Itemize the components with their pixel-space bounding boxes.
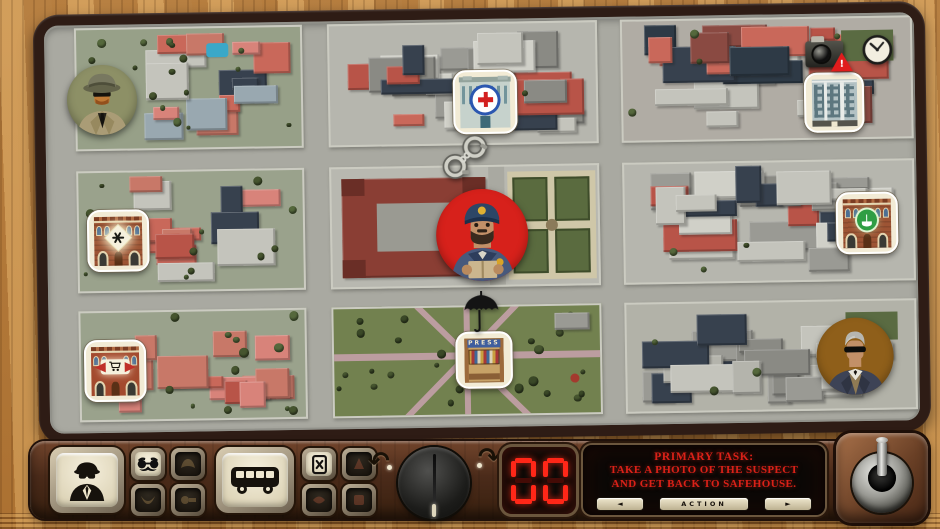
market-building xyxy=(90,345,141,396)
building xyxy=(675,194,717,212)
counter-digit xyxy=(543,458,568,504)
building xyxy=(735,165,762,202)
dial-dot-left xyxy=(387,465,392,470)
tree xyxy=(170,313,179,322)
tree xyxy=(371,384,377,390)
rotate-left-icon[interactable]: ↶ xyxy=(368,449,390,475)
building xyxy=(730,46,790,76)
tree xyxy=(543,390,550,397)
tree xyxy=(578,391,584,397)
tree xyxy=(652,339,658,345)
hospital-tile[interactable] xyxy=(453,69,518,134)
building xyxy=(776,170,831,205)
tree xyxy=(514,383,524,393)
tree xyxy=(434,363,439,368)
tree xyxy=(239,348,249,358)
pass-card-button[interactable] xyxy=(302,448,336,480)
joystick[interactable] xyxy=(836,433,928,523)
tree xyxy=(288,205,296,213)
tree xyxy=(336,387,341,392)
action-option-3-button[interactable] xyxy=(302,484,336,516)
clock-icon[interactable] xyxy=(861,34,894,70)
bar-tile[interactable] xyxy=(87,209,150,272)
action-label: ACTION xyxy=(681,500,727,508)
building xyxy=(240,381,266,408)
tree xyxy=(225,332,231,338)
tree xyxy=(199,230,204,235)
tree xyxy=(395,337,402,344)
building xyxy=(232,41,261,54)
hedge-plot xyxy=(555,229,591,273)
tree xyxy=(287,123,291,127)
building xyxy=(157,355,209,389)
tree xyxy=(148,92,156,100)
tree xyxy=(528,376,538,386)
prev-task-button[interactable]: ◄ xyxy=(597,498,643,510)
tree xyxy=(183,274,189,280)
building xyxy=(655,88,728,106)
tree xyxy=(166,386,173,393)
fountain xyxy=(570,374,579,383)
tree xyxy=(186,125,190,129)
action-button[interactable]: ACTION xyxy=(660,498,748,510)
building xyxy=(697,314,747,346)
building xyxy=(234,85,279,104)
prev-arrow-icon: ◄ xyxy=(617,500,622,508)
building xyxy=(186,98,228,130)
tree xyxy=(271,245,278,252)
tree xyxy=(369,369,374,374)
tree xyxy=(133,66,138,71)
detective-mode-button[interactable] xyxy=(50,447,124,513)
building xyxy=(554,312,589,330)
building xyxy=(156,233,195,258)
tree xyxy=(528,338,534,344)
building xyxy=(220,185,243,214)
camera-icon[interactable]: ! xyxy=(805,35,845,67)
tree xyxy=(184,90,190,96)
tree xyxy=(289,311,299,321)
tree xyxy=(253,176,262,185)
tree xyxy=(400,315,408,323)
umbrella-icon[interactable] xyxy=(460,289,503,338)
tree xyxy=(437,350,446,359)
hotel-tile[interactable] xyxy=(804,72,865,133)
tree xyxy=(447,400,454,407)
tree xyxy=(236,67,241,72)
building xyxy=(255,335,290,360)
disguise-glasses-icon xyxy=(135,455,161,474)
game-board: PRESS ! xyxy=(33,1,932,445)
dial-dot-right xyxy=(477,463,482,468)
building xyxy=(343,260,366,278)
tree xyxy=(233,336,240,343)
building xyxy=(524,79,567,103)
tree xyxy=(289,405,298,414)
building xyxy=(217,229,275,266)
tree xyxy=(97,39,106,48)
disguise-option-2-button[interactable] xyxy=(171,448,205,480)
building xyxy=(342,178,365,196)
tree xyxy=(191,404,196,409)
turn-counter xyxy=(502,447,576,514)
disguise-option-4-button[interactable] xyxy=(171,484,205,516)
building xyxy=(130,176,163,192)
tree xyxy=(752,367,761,376)
counter-digit xyxy=(511,458,536,504)
rotary-dial[interactable] xyxy=(398,447,470,519)
tree xyxy=(140,39,148,47)
city-map: PRESS ! xyxy=(44,12,920,434)
tree xyxy=(522,90,528,96)
tree xyxy=(99,184,104,189)
tree xyxy=(88,57,95,64)
hospital-building xyxy=(459,75,512,128)
disguise-glasses-button[interactable] xyxy=(131,448,165,480)
building xyxy=(648,37,673,63)
handcuffs-icon[interactable] xyxy=(440,133,493,184)
task-display: PRIMARY TASK: TAKE A PHOTO OF THE SUSPEC… xyxy=(583,445,825,515)
next-arrow-icon: ► xyxy=(785,500,790,508)
control-panel: ↶ ↷ PRIMARY TASK: TAKE A PHOTO OF THE SU… xyxy=(30,441,908,519)
tree xyxy=(534,345,544,355)
hedge-plot xyxy=(554,177,590,221)
press-kiosk: PRESS xyxy=(461,337,507,383)
building xyxy=(403,44,425,75)
next-task-button[interactable]: ► xyxy=(765,498,811,510)
tree xyxy=(188,267,195,274)
tree xyxy=(342,372,348,378)
tree xyxy=(160,105,166,111)
task-heading: PRIMARY TASK: xyxy=(583,451,825,463)
tree xyxy=(701,266,707,272)
tree xyxy=(169,43,175,49)
tree xyxy=(173,118,182,127)
tree xyxy=(84,272,89,277)
tree xyxy=(224,406,232,414)
shopping-cart-sign-icon xyxy=(101,359,130,374)
tree xyxy=(709,386,718,395)
press-kiosk-tile[interactable]: PRESS xyxy=(455,331,513,389)
task-line: TAKE A PHOTO OF THE SUSPECT xyxy=(583,463,825,477)
pharmacy-building xyxy=(841,197,892,248)
market-tile[interactable] xyxy=(84,339,147,402)
tree xyxy=(628,109,635,116)
tree xyxy=(231,366,240,375)
building xyxy=(732,360,762,393)
tree xyxy=(388,371,395,378)
joystick-lever[interactable] xyxy=(877,440,887,476)
task-line: AND GET BACK TO SAFEHOUSE. xyxy=(583,477,825,491)
pool xyxy=(206,42,229,57)
bar-building xyxy=(93,215,144,266)
building xyxy=(393,114,425,127)
pharmacy-tile[interactable] xyxy=(835,191,898,254)
tree xyxy=(580,369,586,375)
tree xyxy=(356,329,365,338)
building xyxy=(707,111,739,127)
tree xyxy=(555,329,563,337)
building xyxy=(670,364,739,392)
transport-bus-button[interactable] xyxy=(216,447,294,513)
press-sign: PRESS xyxy=(467,339,500,347)
red-cross-icon xyxy=(473,87,498,112)
tree xyxy=(357,317,365,325)
action-option-4-button[interactable] xyxy=(342,484,376,516)
pass-card-x-icon xyxy=(311,454,328,475)
tree xyxy=(169,69,176,76)
detective-icon xyxy=(66,459,108,501)
hotel-building xyxy=(810,78,859,127)
bus-icon xyxy=(229,464,281,496)
tree xyxy=(257,253,264,260)
building xyxy=(785,376,824,401)
building xyxy=(477,32,523,65)
disguise-option-3-button[interactable] xyxy=(131,484,165,516)
